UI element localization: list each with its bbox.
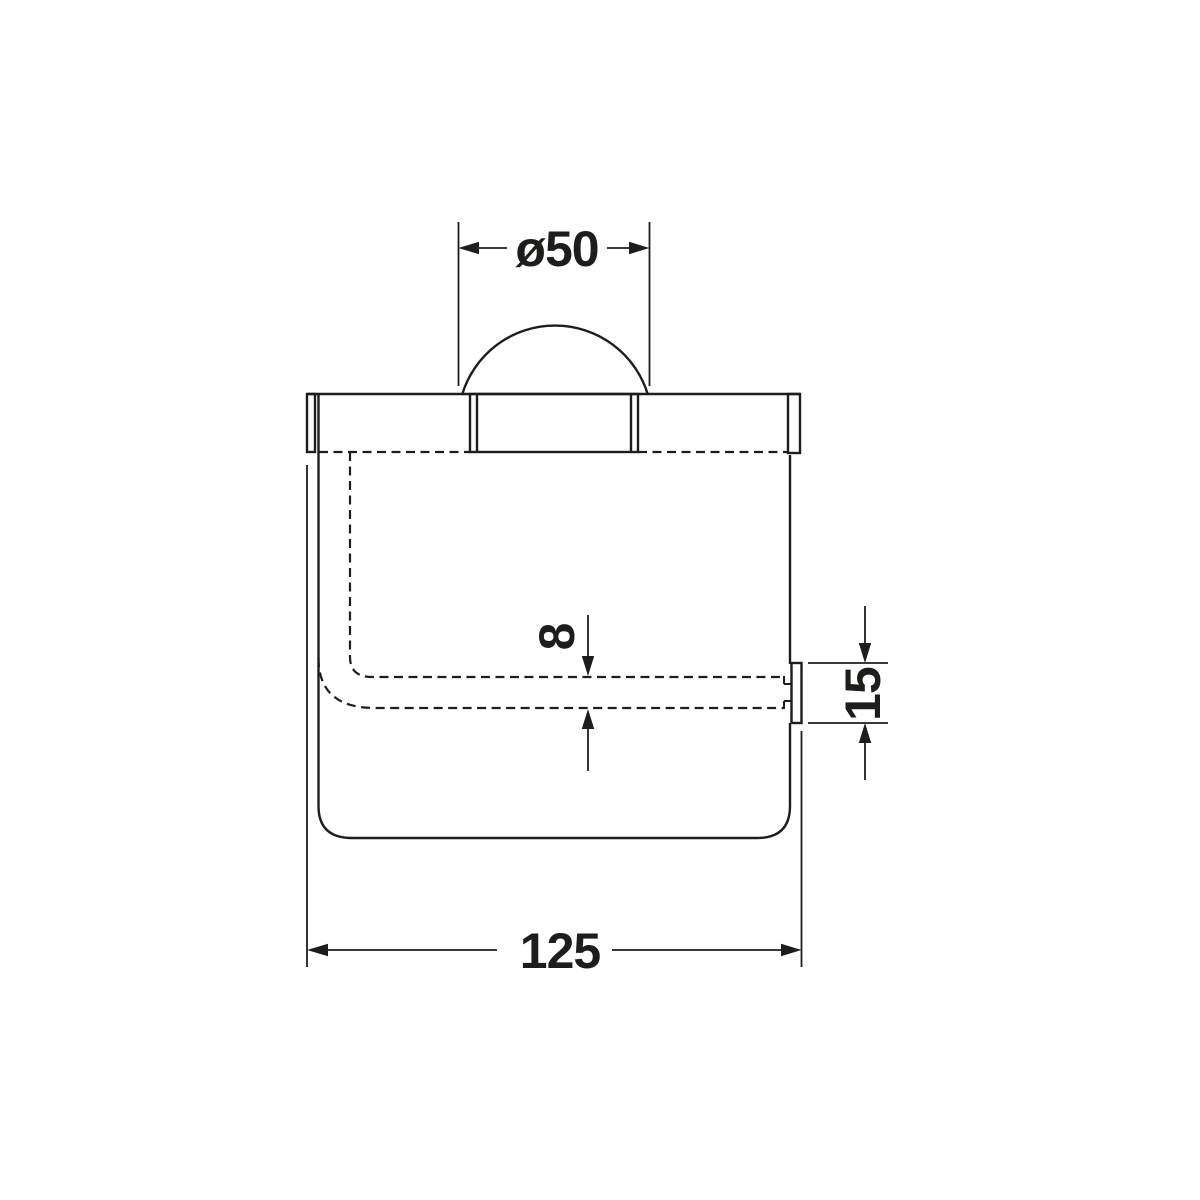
- dim-label-spindle-diameter: ø50: [515, 221, 598, 277]
- dim-label-overall-width: 125: [520, 923, 601, 979]
- technical-drawing-page: ø50 8 15 125: [0, 0, 1200, 1200]
- spindle-pin-cap: [792, 663, 802, 723]
- dim-label-roll-bar-thickness: 8: [529, 623, 585, 650]
- toilet-roll-holder-drawing: ø50 8 15 125: [0, 0, 1200, 1200]
- drawing-background: [0, 0, 1200, 1200]
- dim-label-pin-height: 15: [835, 667, 891, 721]
